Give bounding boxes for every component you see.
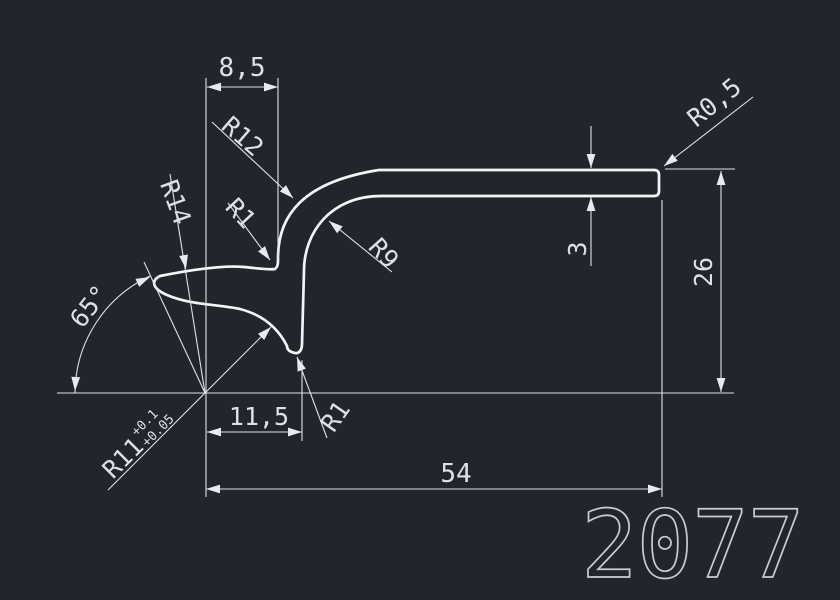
arrow-3-bottom (587, 197, 596, 211)
arrow-54-left (206, 485, 220, 494)
radius-r9-label: R9 (363, 232, 405, 274)
arrow-11-5-left (207, 428, 221, 437)
arrow-8-5-right (264, 83, 278, 92)
radius-r1-lower-label: R1 (315, 396, 356, 437)
profile-outline (154, 170, 659, 353)
dim-top-width-label: 8,5 (219, 53, 266, 83)
arrowheads (71, 83, 726, 494)
arrow-r1-upper (258, 246, 273, 262)
radius-r1-upper-label: R1 (220, 192, 262, 234)
radius-r11-label-group: R11 +0.1 +0.05 (95, 401, 178, 484)
dim-height-label: 26 (689, 257, 718, 287)
cad-canvas[interactable]: 8,5 R12 R14 R1 R9 R0,5 3 26 65° R11 +0.1… (0, 0, 840, 600)
arrow-r9 (326, 218, 342, 234)
dimension-texts: 8,5 R12 R14 R1 R9 R0,5 3 26 65° R11 +0.1… (64, 53, 747, 489)
arrow-26-top (717, 171, 726, 185)
part-number: 2077 (581, 491, 803, 600)
dim-angle-label: 65° (64, 280, 115, 333)
dim-length-label: 54 (440, 459, 471, 489)
radius-r0-5-label: R0,5 (682, 72, 747, 132)
arrow-r1-lower (293, 355, 306, 371)
arrow-3-top (587, 154, 596, 168)
angle-65-reference-line (144, 262, 205, 393)
arrow-11-5-right (288, 428, 302, 437)
arrow-8-5-left (207, 83, 221, 92)
radius-r12-label: R12 (216, 111, 269, 163)
arrow-r0-5 (661, 154, 677, 170)
dim-thickness-label: 3 (563, 241, 592, 256)
cad-viewport[interactable]: 8,5 R12 R14 R1 R9 R0,5 3 26 65° R11 +0.1… (0, 0, 840, 600)
arrow-26-bottom (717, 378, 726, 392)
arrow-65-bottom (71, 377, 81, 391)
arrow-65-top (135, 273, 151, 287)
dim-lip-offset-label: 11,5 (229, 402, 289, 431)
radius-r14-label: R14 (154, 176, 197, 228)
